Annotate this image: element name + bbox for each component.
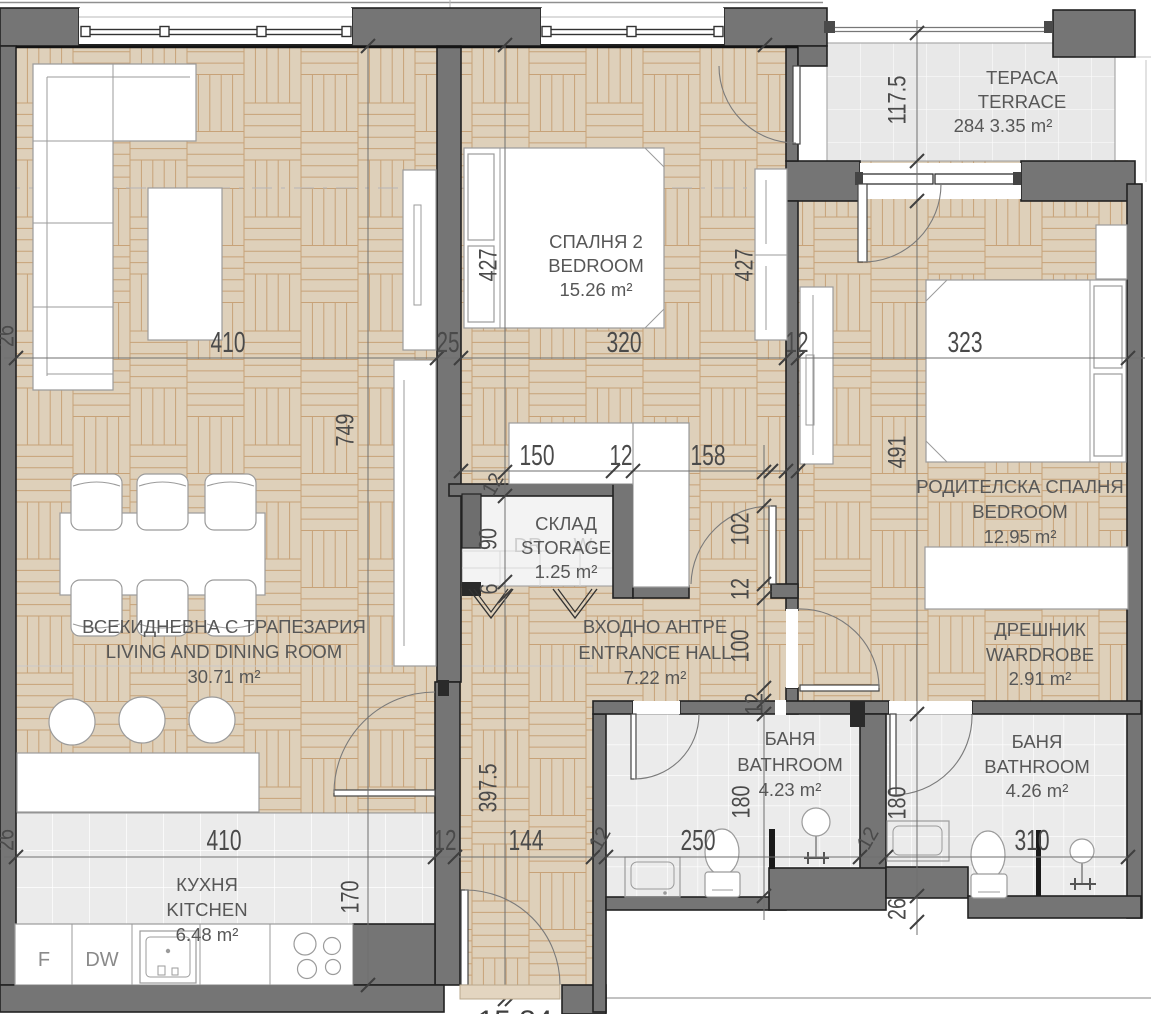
svg-text:397.5: 397.5: [475, 764, 503, 813]
svg-text:12.95 m²: 12.95 m²: [983, 526, 1056, 547]
svg-text:БАНЯ: БАНЯ: [765, 728, 816, 749]
svg-text:12: 12: [786, 327, 809, 359]
svg-text:ВХОДНО АНТРЕ: ВХОДНО АНТРЕ: [583, 616, 727, 637]
svg-text:26: 26: [0, 325, 20, 347]
svg-text:STORAGE: STORAGE: [521, 537, 611, 558]
svg-text:7.22 m²: 7.22 m²: [624, 667, 687, 688]
svg-text:90: 90: [475, 528, 503, 550]
svg-text:БАНЯ: БАНЯ: [1012, 731, 1063, 752]
svg-text:410: 410: [211, 327, 246, 359]
svg-text:СКЛАД: СКЛАД: [535, 513, 597, 534]
svg-text:DW: DW: [85, 949, 118, 971]
svg-text:СПАЛНЯ 2: СПАЛНЯ 2: [549, 231, 643, 252]
svg-text:BEDROOM: BEDROOM: [972, 501, 1068, 522]
svg-text:250: 250: [681, 825, 716, 857]
svg-text:102: 102: [727, 513, 755, 546]
svg-text:100: 100: [727, 630, 755, 663]
svg-text:427: 427: [731, 249, 759, 282]
svg-text:144: 144: [509, 825, 544, 857]
svg-text:320: 320: [607, 327, 642, 359]
svg-text:30.71 m²: 30.71 m²: [187, 666, 260, 687]
svg-text:LIVING AND DINING ROOM: LIVING AND DINING ROOM: [106, 641, 342, 662]
svg-text:F: F: [38, 949, 50, 971]
svg-text:WARDROBE: WARDROBE: [986, 644, 1094, 665]
svg-text:158: 158: [691, 440, 726, 472]
svg-text:6: 6: [476, 584, 504, 595]
svg-text:749: 749: [332, 414, 360, 447]
svg-text:170: 170: [337, 881, 365, 914]
svg-text:180: 180: [728, 786, 756, 819]
svg-text:ТЕРАСА: ТЕРАСА: [986, 67, 1059, 88]
svg-text:12: 12: [741, 693, 769, 715]
svg-text:26: 26: [0, 829, 20, 851]
svg-text:310: 310: [1015, 825, 1050, 857]
svg-text:TERRACE: TERRACE: [978, 91, 1066, 112]
svg-text:410: 410: [207, 825, 242, 857]
svg-text:ВСЕКИДНЕВНА С ТРАПЕЗАРИЯ: ВСЕКИДНЕВНА С ТРАПЕЗАРИЯ: [82, 616, 366, 637]
svg-text:2.91 m²: 2.91 m²: [1009, 668, 1072, 689]
svg-text:6.48 m²: 6.48 m²: [176, 924, 239, 945]
svg-text:117.5: 117.5: [884, 76, 912, 125]
svg-text:150: 150: [520, 440, 555, 472]
svg-text:ENTRANCE HALL: ENTRANCE HALL: [578, 642, 731, 663]
svg-text:KITCHEN: KITCHEN: [166, 899, 247, 920]
svg-text:25: 25: [437, 327, 460, 359]
svg-text:26: 26: [884, 898, 912, 920]
svg-text:ДРЕШНИК: ДРЕШНИК: [994, 619, 1086, 640]
svg-text:1.25 m²: 1.25 m²: [535, 561, 598, 582]
svg-text:BATHROOM: BATHROOM: [737, 754, 843, 775]
svg-text:323: 323: [948, 327, 983, 359]
svg-text:12: 12: [610, 440, 633, 472]
svg-text:427: 427: [475, 249, 503, 282]
svg-text:РОДИТЕЛСКА СПАЛНЯ: РОДИТЕЛСКА СПАЛНЯ: [916, 476, 1123, 497]
svg-text:491: 491: [884, 436, 912, 469]
svg-text:12: 12: [727, 578, 755, 600]
svg-text:BEDROOM: BEDROOM: [548, 255, 644, 276]
svg-text:15.26 m²: 15.26 m²: [559, 279, 632, 300]
svg-text:284 3.35 m²: 284 3.35 m²: [954, 115, 1053, 136]
svg-text:BATHROOM: BATHROOM: [984, 756, 1090, 777]
svg-text:15.84: 15.84: [477, 1005, 552, 1014]
svg-text:180: 180: [884, 787, 912, 820]
svg-text:4.23 m²: 4.23 m²: [759, 779, 822, 800]
svg-text:4.26 m²: 4.26 m²: [1006, 780, 1069, 801]
svg-text:12: 12: [434, 825, 457, 857]
svg-text:КУХНЯ: КУХНЯ: [176, 874, 238, 895]
